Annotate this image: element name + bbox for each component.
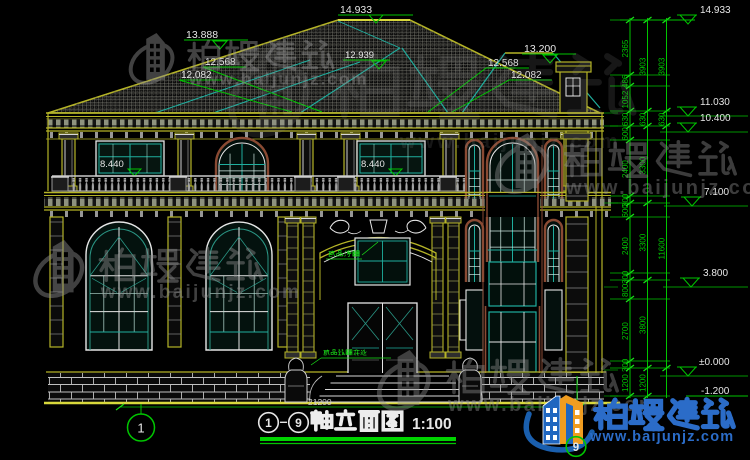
svg-text:600: 600 [621,204,630,218]
svg-text:1: 1 [137,421,144,436]
svg-text:630: 630 [621,112,630,126]
svg-text:2400: 2400 [621,237,630,255]
svg-text:-1.200: -1.200 [701,386,730,397]
svg-text:300: 300 [621,270,630,284]
svg-text:3903: 3903 [658,57,667,75]
svg-text:13.888: 13.888 [186,29,218,41]
svg-text:21200: 21200 [308,397,332,407]
svg-text:8.440: 8.440 [361,159,385,170]
svg-text:13.200: 13.200 [524,43,556,55]
svg-text:8.440: 8.440 [100,159,124,170]
svg-text:630: 630 [639,112,648,126]
svg-text:www.baijunjz.com: www.baijunjz.com [100,282,301,303]
svg-text:3300: 3300 [639,233,648,251]
svg-text:3.800: 3.800 [703,268,728,279]
svg-text:800: 800 [621,283,630,297]
svg-text:10.400: 10.400 [700,113,731,124]
svg-text:630: 630 [658,112,667,126]
svg-text:11600: 11600 [658,237,667,259]
svg-text:±0.000: ±0.000 [699,357,730,368]
svg-text:www.baijunjz.com: www.baijunjz.com [565,177,750,199]
svg-text:1200: 1200 [639,374,648,392]
svg-text:1200: 1200 [621,374,630,392]
svg-text:2365: 2365 [621,39,630,57]
svg-text:14.933: 14.933 [700,5,731,16]
svg-text:14.933: 14.933 [340,4,372,16]
svg-text:9: 9 [573,442,579,454]
svg-text:2700: 2700 [621,322,630,340]
svg-text:1: 1 [265,416,272,430]
svg-text:3903: 3903 [639,57,648,75]
svg-text:1:100: 1:100 [412,416,452,433]
svg-text:3800: 3800 [639,316,648,334]
svg-text:9: 9 [295,416,302,430]
svg-text:–: – [280,413,288,429]
svg-text:600: 600 [621,127,630,141]
svg-text:300: 300 [621,358,630,372]
svg-text:www.baijunjz.com: www.baijunjz.com [589,429,734,445]
svg-text:11.030: 11.030 [700,97,730,108]
